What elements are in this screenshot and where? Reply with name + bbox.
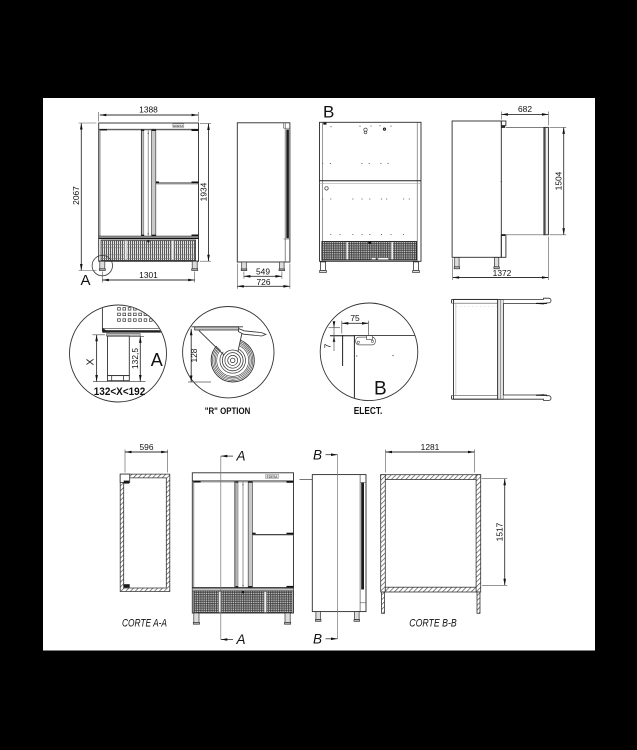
svg-text:X: X xyxy=(85,358,97,365)
svg-text:B: B xyxy=(313,632,322,647)
svg-text:726: 726 xyxy=(257,277,271,287)
svg-text:ELECT.: ELECT. xyxy=(354,406,383,417)
svg-text:7: 7 xyxy=(323,343,333,348)
svg-text:B: B xyxy=(313,448,322,463)
svg-text:1504: 1504 xyxy=(554,171,564,190)
svg-text:132,5: 132,5 xyxy=(130,348,140,369)
svg-text:682: 682 xyxy=(518,104,532,114)
svg-text:75: 75 xyxy=(350,313,360,323)
svg-text:EDESA: EDESA xyxy=(267,475,279,479)
svg-text:B: B xyxy=(323,102,334,121)
svg-text:A: A xyxy=(236,449,246,464)
svg-text:EDESA: EDESA xyxy=(173,124,183,128)
svg-text:2067: 2067 xyxy=(71,186,81,205)
svg-text:CORTE A-A: CORTE A-A xyxy=(122,617,167,629)
svg-text:"R" OPTION: "R" OPTION xyxy=(205,406,251,417)
svg-text:132<X<192: 132<X<192 xyxy=(94,386,146,398)
svg-text:1301: 1301 xyxy=(139,270,158,280)
svg-text:1281: 1281 xyxy=(421,442,440,452)
svg-text:1388: 1388 xyxy=(139,105,158,115)
svg-text:CORTE B-B: CORTE B-B xyxy=(409,617,457,629)
svg-text:1372: 1372 xyxy=(493,268,512,278)
svg-text:549: 549 xyxy=(256,266,270,276)
svg-text:128: 128 xyxy=(189,348,199,362)
svg-text:1517: 1517 xyxy=(495,522,505,541)
svg-text:A: A xyxy=(81,272,91,289)
svg-text:1934: 1934 xyxy=(199,182,209,201)
svg-text:B: B xyxy=(374,379,387,400)
svg-text:A: A xyxy=(151,350,163,370)
svg-text:A: A xyxy=(236,632,246,647)
svg-text:596: 596 xyxy=(140,442,154,452)
